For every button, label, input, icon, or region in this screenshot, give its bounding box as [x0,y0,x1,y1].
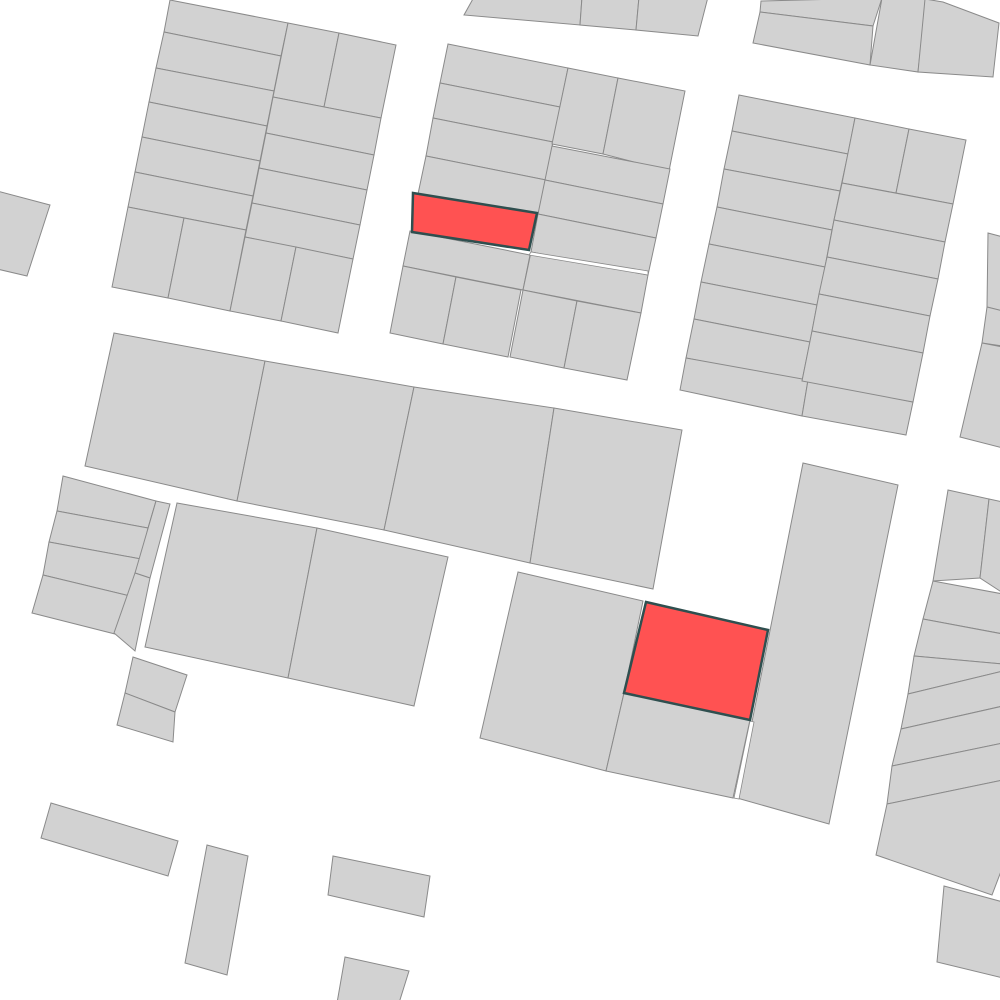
parcel[interactable] [337,957,409,1000]
map-svg[interactable] [0,0,1000,1000]
parcel[interactable] [636,0,708,36]
parcel-layer [0,0,1000,1000]
parcel[interactable] [145,503,317,678]
parcel[interactable] [933,490,989,581]
parcel[interactable] [288,528,448,706]
parcel[interactable] [960,343,1000,448]
parcel[interactable] [237,361,414,530]
parcel[interactable] [937,886,1000,978]
parcel[interactable] [987,233,1000,311]
parcel[interactable] [982,307,1000,346]
parcel[interactable] [603,78,685,171]
parcel[interactable] [443,277,521,357]
parcel[interactable] [41,803,178,876]
parcel[interactable] [580,0,639,30]
parcel[interactable] [464,0,582,25]
parcel[interactable] [85,333,265,501]
map-viewport[interactable] [0,0,1000,1000]
parcel[interactable] [328,856,430,917]
parcel[interactable] [384,387,554,563]
parcel[interactable] [530,408,682,589]
parcel[interactable] [896,129,966,204]
parcel[interactable] [0,191,50,276]
parcel[interactable] [564,301,641,380]
parcel[interactable] [918,0,999,77]
parcel[interactable] [185,845,248,975]
